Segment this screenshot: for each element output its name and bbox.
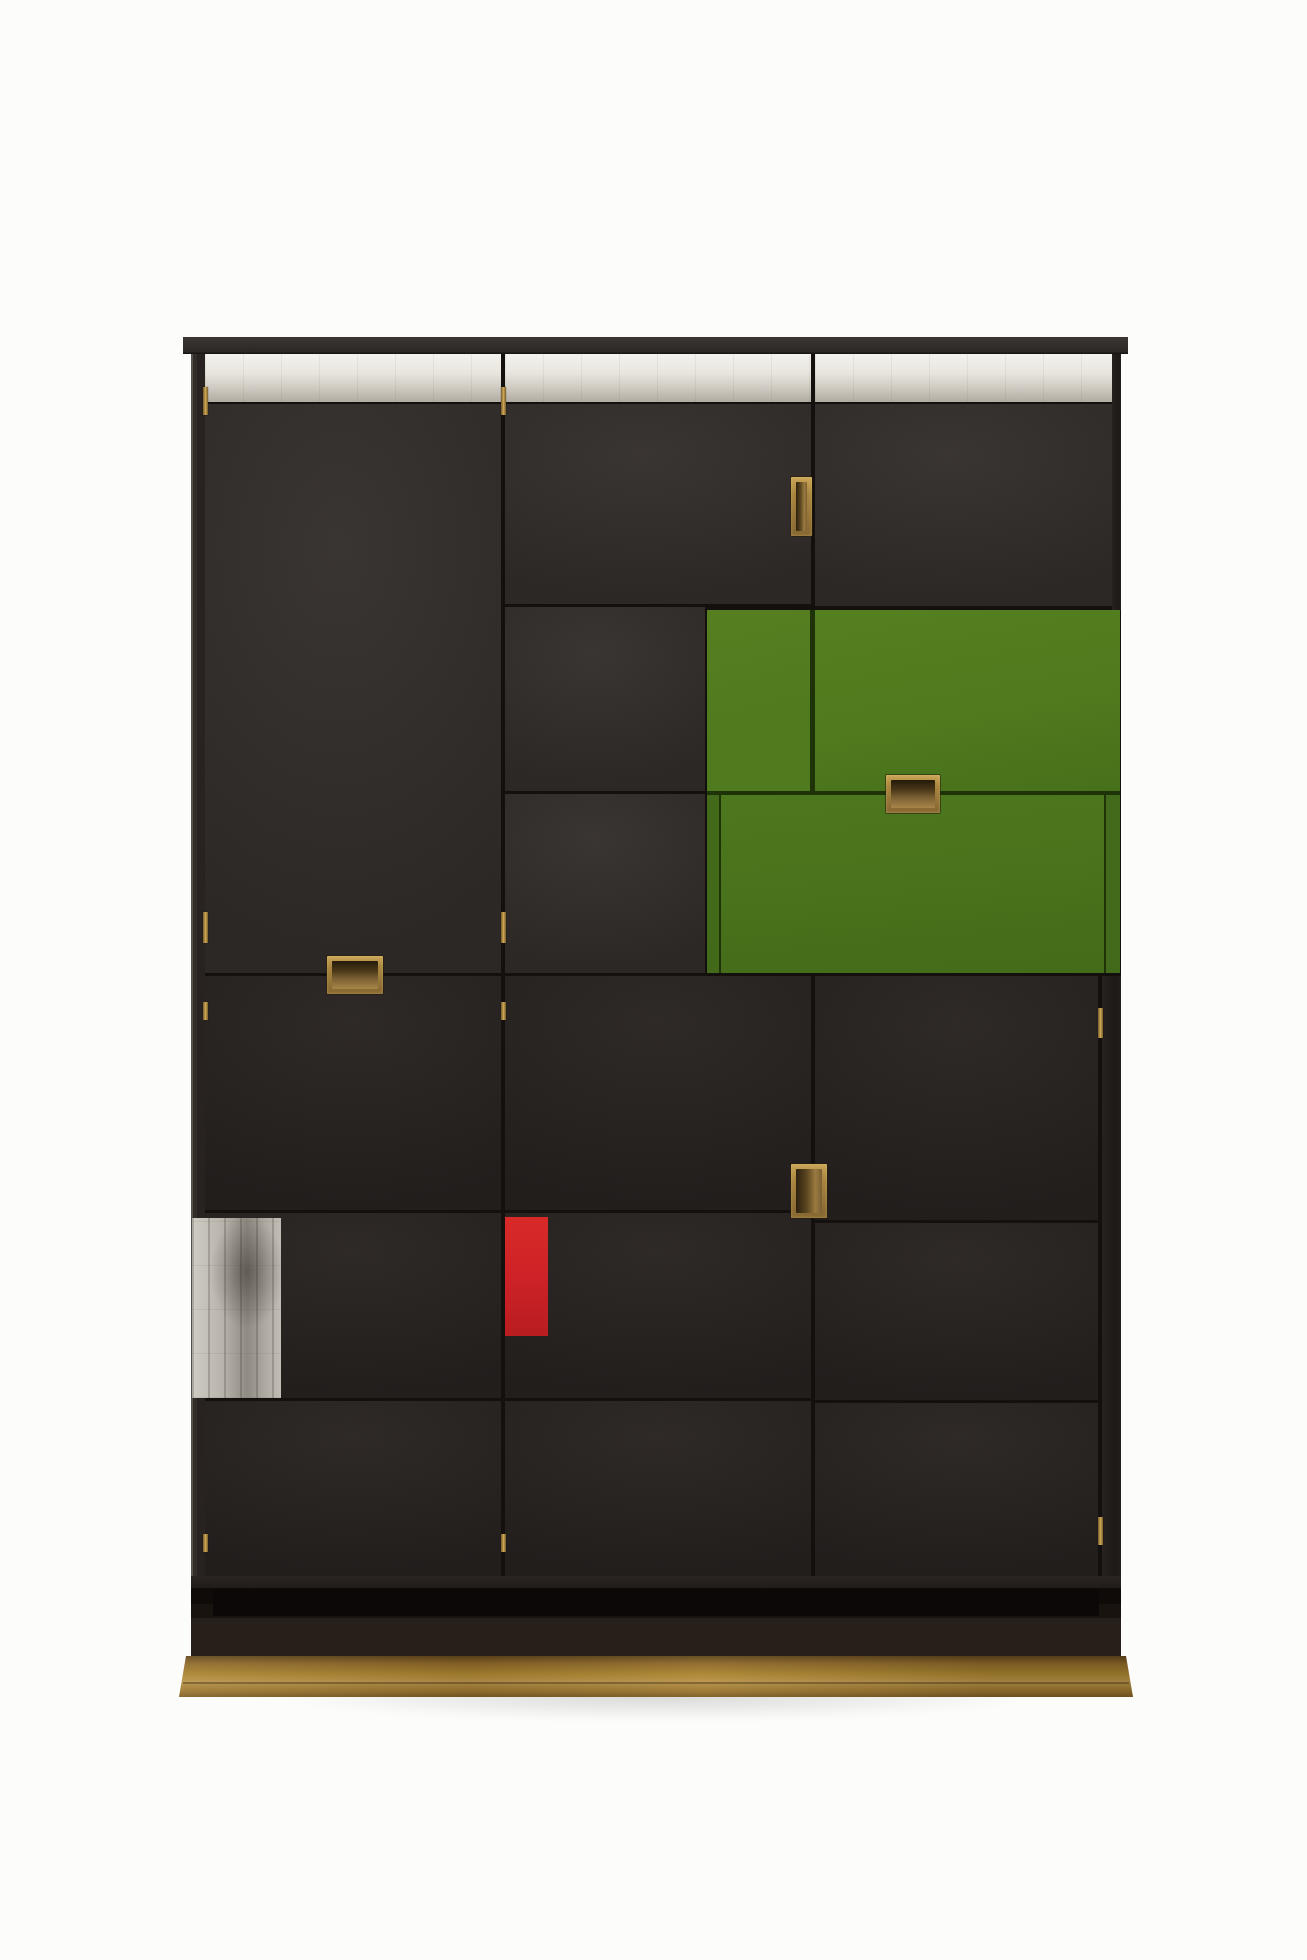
hinge-pin-center-lower-a (501, 912, 506, 943)
door-middle-top (505, 404, 811, 604)
green-fall-front-upper (815, 610, 1120, 791)
recessed-pull-lower-middle-recess (796, 1169, 822, 1213)
edge-pull-middle-top-door (791, 477, 812, 536)
silver-leaf-patch-bright (286, 1218, 501, 1398)
hinge-pin-top-left (203, 387, 208, 415)
hinge-pin-right-bottom (1098, 1517, 1103, 1545)
door-middle-bottom (505, 1401, 811, 1576)
door-middle-mid-lower (505, 794, 705, 973)
silver-frieze-middle (505, 354, 811, 402)
silver-leaf-band (505, 1336, 807, 1398)
cabinet-left-edge (191, 353, 205, 1588)
door-middle-mid-upper (505, 607, 705, 791)
hinge-pin-center-lower-b (501, 1002, 506, 1020)
hinge-pin-right-mid (1098, 1008, 1103, 1038)
cabinet-top-board (183, 337, 1128, 354)
door-left-tall (205, 404, 501, 973)
door-right-lower (815, 1223, 1098, 1400)
green-frame-left-sliver (707, 795, 719, 973)
door-left-mid (205, 976, 501, 1210)
brass-base-seam (183, 1682, 1129, 1684)
recessed-pull-green-recess (891, 780, 935, 808)
silver-frieze-left (205, 354, 501, 402)
green-drawer-front (721, 795, 1104, 973)
recessed-pull-lower-middle (791, 1164, 827, 1218)
plinth-recess-shadow (213, 1590, 1099, 1616)
red-accent-panel (505, 1217, 548, 1336)
door-left-bottom (205, 1401, 501, 1576)
hinge-pin-left-lower-b (203, 1002, 208, 1020)
brass-base (179, 1656, 1133, 1697)
silver-frieze-right (815, 354, 1112, 402)
hinge-pin-bottom-center (501, 1534, 506, 1552)
silver-leaf-patch-tarnished (192, 1218, 281, 1398)
door-right-top (815, 404, 1112, 606)
hinge-pin-top-center (501, 387, 506, 415)
recessed-pull-left-recess (332, 961, 378, 989)
recessed-pull-left-door (327, 956, 383, 994)
hinge-pin-left-lower-a (203, 912, 208, 943)
hinge-pin-bottom-left (203, 1534, 208, 1552)
cabinet-right-edge-upper (1112, 353, 1121, 610)
door-middle-lower (505, 976, 811, 1210)
door-right-mid (815, 976, 1098, 1220)
recessed-pull-green-drawer (886, 775, 940, 813)
cabinet-right-edge-lower (1102, 976, 1121, 1588)
cabinet (0, 0, 1307, 1960)
green-door-upper-left (707, 610, 810, 791)
photo-canvas (0, 0, 1307, 1960)
cabinet-bottom-rail (191, 1576, 1121, 1588)
green-frame-right-sliver (1106, 795, 1120, 973)
edge-pull-middle-top-recess (796, 482, 807, 531)
door-right-bottom (815, 1403, 1098, 1576)
